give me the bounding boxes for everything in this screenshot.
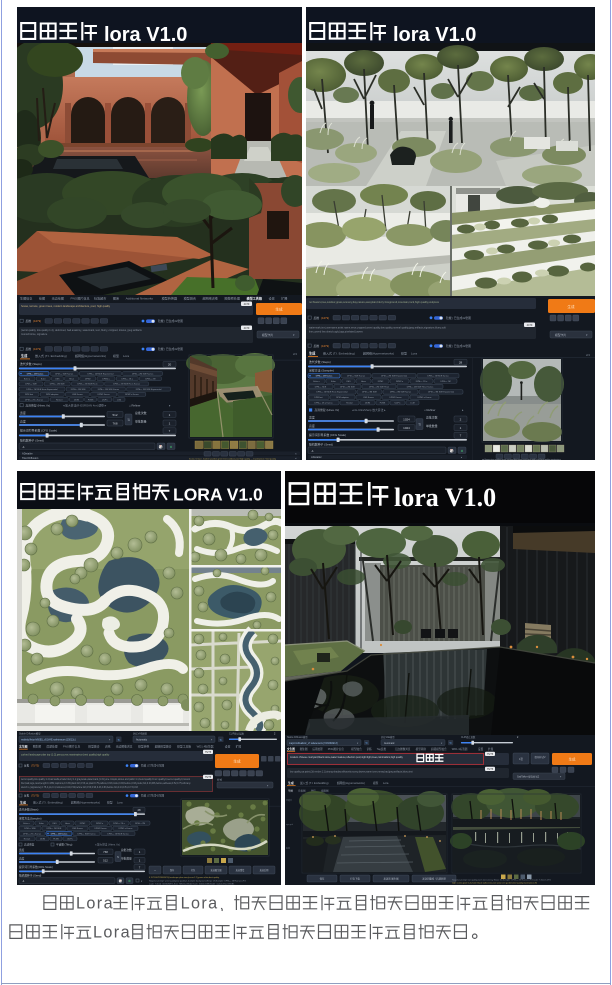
svg-text:Euler a: Euler a xyxy=(24,379,31,381)
svg-text:75/75: 75/75 xyxy=(205,776,212,779)
svg-text:DPM++ 2M SDE Exponential: DPM++ 2M SDE Exponential xyxy=(88,372,114,375)
svg-text:隐藏 | 已生成42张图: 隐藏 | 已生成42张图 xyxy=(446,316,471,320)
svg-text:◂ 放大算法 (Hires. fix): ◂ 放大算法 (Hires. fix) xyxy=(95,843,120,847)
svg-text:house, terrace, green trees, m: house, terrace, green trees, modern land… xyxy=(21,304,111,308)
svg-text:DPM++ 2S a Karras: DPM++ 2S a Karras xyxy=(25,399,43,401)
svg-text:75/75: 75/75 xyxy=(487,753,494,756)
svg-text:设置: 设置 xyxy=(225,745,231,749)
svg-text:Euler a: Euler a xyxy=(313,381,320,383)
svg-text:768: 768 xyxy=(103,850,108,854)
svg-text:no flowers,tree,outdoor,grass,: no flowers,tree,outdoor,grass,scenery,da… xyxy=(309,300,440,304)
svg-text:LMS: LMS xyxy=(346,381,351,383)
svg-text:DPM++ 2M SDE Exponential: DPM++ 2M SDE Exponential xyxy=(381,375,407,378)
svg-text:Euler: Euler xyxy=(41,379,46,381)
svg-text:Heun: Heun xyxy=(69,379,74,381)
svg-text:PNG图片信息: PNG图片信息 xyxy=(63,745,80,749)
svg-text:Lora: Lora xyxy=(181,895,218,912)
svg-text:watermark,text,username,artist: watermark,text,username,artist name,erro… xyxy=(309,326,446,329)
svg-text:DPM2: DPM2 xyxy=(85,379,91,381)
svg-text:blur,bad,logo,cand,length:0.43: blur,bad,logo,cand,length:0.4352,caption… xyxy=(21,782,191,785)
svg-text:生成: 生成 xyxy=(21,353,28,358)
svg-text:□ Refiner: □ Refiner xyxy=(424,408,436,412)
svg-text:DPM++ SDE Karras: DPM++ SDE Karras xyxy=(347,376,365,378)
svg-text:🎲: 🎲 xyxy=(159,444,163,449)
svg-text:绘图: 绘图 xyxy=(39,296,45,301)
svg-text:生成: 生成 xyxy=(288,780,294,785)
svg-text:DPM2 a Karras: DPM2 a Karras xyxy=(418,397,432,399)
svg-text:总批次数: 总批次数 xyxy=(426,415,438,420)
svg-text:DPM++ 2M SDE Karras: DPM++ 2M SDE Karras xyxy=(427,376,448,378)
svg-text:反推: 反推 xyxy=(26,347,32,351)
svg-text:512: 512 xyxy=(112,413,117,417)
svg-text:超网络训练: 超网络训练 xyxy=(203,296,218,301)
svg-text:(4479): (4479) xyxy=(321,344,329,348)
svg-text:训练: 训练 xyxy=(367,747,373,751)
svg-text:文生图: 文生图 xyxy=(18,745,28,749)
svg-text:扩展: 扩展 xyxy=(236,745,242,749)
svg-text:DPM++ 2S a: DPM++ 2S a xyxy=(416,381,428,383)
svg-text:-1: -1 xyxy=(22,879,25,883)
svg-text:PNG图片信息: PNG图片信息 xyxy=(71,296,90,301)
svg-text:DPM++ 2M: DPM++ 2M xyxy=(145,379,155,381)
svg-text:Negative prompt: low quality,w: Negative prompt: low quality,warm tone,m… xyxy=(452,878,552,881)
svg-text:隐藏 | 已生成42张图: 隐藏 | 已生成42张图 xyxy=(141,794,165,798)
svg-text:PLMS: PLMS xyxy=(53,839,59,841)
svg-text:DPM2 a Karras: DPM2 a Karras xyxy=(125,394,139,396)
svg-text:UniPC: UniPC xyxy=(395,403,401,405)
svg-text:Euler a: Euler a xyxy=(23,823,30,825)
svg-text:提示词引导系数(CFG Scale): 提示词引导系数(CFG Scale) xyxy=(19,865,53,869)
svg-text:1张: 1张 xyxy=(519,757,523,761)
svg-text:▾: ▾ xyxy=(560,776,561,779)
svg-text:28: 28 xyxy=(459,360,463,364)
svg-text:🎲: 🎲 xyxy=(450,448,454,453)
svg-text:超网络(Hypernetworks): 超网络(Hypernetworks) xyxy=(363,351,394,356)
svg-text:隐藏 | 已生成42张图: 隐藏 | 已生成42张图 xyxy=(158,347,183,351)
svg-text:DPM fast: DPM fast xyxy=(25,393,34,396)
svg-text:随机数种子 (Seed): 随机数种子 (Seed) xyxy=(20,437,44,442)
svg-text:模型工具箱: 模型工具箱 xyxy=(177,745,191,749)
svg-text:Automatic: Automatic xyxy=(384,742,395,745)
svg-text:文生图: 文生图 xyxy=(286,747,295,751)
svg-text:迭代步数 (Steps): 迭代步数 (Steps) xyxy=(20,361,42,366)
svg-text:超级模型融合: 超级模型融合 xyxy=(155,745,172,749)
svg-text:Lora: Lora xyxy=(117,800,123,804)
svg-text:高度: 高度 xyxy=(309,423,315,428)
svg-text:嵌入式 (T.I. Embedding): 嵌入式 (T.I. Embedding) xyxy=(33,800,63,804)
svg-text:WD1.4标签器: WD1.4标签器 xyxy=(197,745,214,749)
svg-text:后期处理: 后期处理 xyxy=(312,747,323,751)
svg-text:模型转换器: 模型转换器 xyxy=(162,296,177,301)
svg-text:🎲: 🎲 xyxy=(119,879,123,883)
svg-text:PLMS: PLMS xyxy=(380,403,386,405)
svg-text:无边图像浏览: 无边图像浏览 xyxy=(116,745,133,749)
svg-text:Lora: Lora xyxy=(123,354,129,358)
svg-text:DPM++ 3M SDE Karras: DPM++ 3M SDE Karras xyxy=(390,392,411,394)
svg-text:DPM2 a: DPM2 a xyxy=(102,379,110,381)
svg-text:DDIM: DDIM xyxy=(74,399,79,401)
svg-text:DPM++ 2M Karras: DPM++ 2M Karras xyxy=(316,376,333,378)
svg-text:DPM++ 2M: DPM++ 2M xyxy=(440,381,450,383)
svg-text:生成: 生成 xyxy=(20,799,26,804)
svg-text:超网络(Hypernetworks): 超网络(Hypernetworks) xyxy=(75,353,106,358)
svg-text:高清修复 (Hires. fix): 高清修复 (Hires. fix) xyxy=(315,408,340,412)
svg-text:超级模型融合: 超级模型融合 xyxy=(431,747,447,751)
svg-text:DPM++ SDE Karras: DPM++ SDE Karras xyxy=(55,373,73,375)
svg-text:Lora: Lora xyxy=(383,781,389,785)
svg-text:DPM fast: DPM fast xyxy=(314,396,323,399)
svg-text:模型: 模型 xyxy=(401,351,407,356)
svg-text:隐藏 | 已生成42张图: 隐藏 | 已生成42张图 xyxy=(158,319,183,323)
svg-text:提示词引导系数 (CFG Scale): 提示词引导系数 (CFG Scale) xyxy=(20,427,57,432)
svg-text:总批次数: 总批次数 xyxy=(121,848,132,852)
svg-text:标签超市: 标签超市 xyxy=(94,296,106,301)
svg-text:monochrome, signature: monochrome, signature xyxy=(21,333,48,336)
svg-text:设置: 设置 xyxy=(269,296,275,301)
svg-text:DPM2: DPM2 xyxy=(378,381,384,383)
svg-text:DPM++ SDE: DPM++ SDE xyxy=(24,828,36,830)
svg-text:Euler: Euler xyxy=(331,381,336,383)
svg-text:保存样式2: 保存样式2 xyxy=(535,755,547,759)
svg-text:扩展: 扩展 xyxy=(488,747,494,751)
svg-text:xyz grid: xyz grid xyxy=(286,824,293,826)
svg-text:DPM2 a: DPM2 a xyxy=(396,381,404,383)
svg-text:Heun: Heun xyxy=(361,381,366,383)
svg-text:DPM++ 2S a Karras: DPM++ 2S a Karras xyxy=(315,403,333,405)
svg-text:(worst quality, low quality:1.: (worst quality, low quality:1.4), deform… xyxy=(21,329,142,332)
svg-text:DPM++ 2M SDE Heun Karras: DPM++ 2M SDE Heun Karras xyxy=(113,384,140,386)
svg-text:无边图像浏览: 无边图像浏览 xyxy=(395,747,411,751)
svg-text:realisticVisionV60B1_v51VAE.sa: realisticVisionV60B1_v51VAE.safetensors … xyxy=(21,739,76,742)
svg-text:curbed landscape plan top (1:2: curbed landscape plan top (1:2),penccurv… xyxy=(21,753,110,756)
svg-text:嵌入式 (T.I. Embedding): 嵌入式 (T.I. Embedding) xyxy=(300,781,329,785)
svg-text:发送到 图生图: 发送到 图生图 xyxy=(383,877,399,881)
svg-text:反推: 反推 xyxy=(24,794,30,798)
svg-text:PNG图片信息: PNG图片信息 xyxy=(328,747,344,751)
svg-text:◂ 4x-UltraSharp 放大算法 ▸: ◂ 4x-UltraSharp 放大算法 ▸ xyxy=(352,408,386,412)
svg-text:1024: 1024 xyxy=(403,417,410,421)
svg-text:总批次数: 总批次数 xyxy=(135,410,147,415)
svg-text:scale: 7,Seed: 3031580971,Size: scale: 7,Seed: 3031580971,Size: 768x512,… xyxy=(149,883,235,885)
svg-text:反推: 反推 xyxy=(26,319,32,323)
svg-text:▾: ▾ xyxy=(357,742,358,745)
svg-text:75/75: 75/75 xyxy=(205,751,212,754)
svg-text:宫格图: 宫格图 xyxy=(298,789,306,793)
svg-text:LMS Karras: LMS Karras xyxy=(363,397,374,399)
svg-text:DPM2 Karras: DPM2 Karras xyxy=(94,828,106,830)
svg-text:生图信息: 生图信息 xyxy=(20,296,32,301)
svg-text:训练: 训练 xyxy=(105,745,111,749)
svg-text:DPM++ 3M SDE: DPM++ 3M SDE xyxy=(362,392,377,394)
svg-text:4479: 4479 xyxy=(244,326,250,330)
svg-text:♻: ♻ xyxy=(461,449,464,453)
svg-text:单批数量: 单批数量 xyxy=(121,857,132,861)
svg-text:超网络(Hypernetworks): 超网络(Hypernetworks) xyxy=(337,781,365,785)
svg-text:DPM++ 2M SDE Karras: DPM++ 2M SDE Karras xyxy=(132,373,153,375)
svg-text:迭代步数(Steps): 迭代步数(Steps) xyxy=(19,807,39,811)
svg-text:WD1.4标签器: WD1.4标签器 xyxy=(452,747,468,751)
svg-text:lora V1.0: lora V1.0 xyxy=(394,483,496,512)
svg-text:图库: 图库 xyxy=(113,296,119,301)
svg-text:DPM++ 3M SDE Exponential: DPM++ 3M SDE Exponential xyxy=(428,391,454,394)
svg-text:后期处理: 后期处理 xyxy=(46,745,57,749)
svg-text:(75/75): (75/75) xyxy=(31,794,39,798)
svg-text:-1: -1 xyxy=(311,449,314,453)
svg-text:⇅: ⇅ xyxy=(418,423,421,427)
svg-text:Stable Diffusion模型: Stable Diffusion模型 xyxy=(19,731,41,735)
svg-text:LMS: LMS xyxy=(52,823,57,825)
svg-text:样式: 样式 xyxy=(217,778,223,782)
svg-text:反推: 反推 xyxy=(314,344,320,348)
svg-text:DPM2 Karras: DPM2 Karras xyxy=(389,397,401,399)
svg-text:2/4: 2/4 xyxy=(586,353,590,357)
svg-text:Negative prompt: worst quality: Negative prompt: worst quality,low quali… xyxy=(149,879,246,882)
svg-text:宽度: 宽度 xyxy=(19,848,25,852)
svg-text:DPM++ 2S a: DPM++ 2S a xyxy=(121,379,133,381)
svg-text:模型卡片: 模型卡片 xyxy=(262,333,273,337)
svg-text:打包下载: 打包下载 xyxy=(350,877,360,881)
svg-text:DPM++ 2M SDE: DPM++ 2M SDE xyxy=(47,828,62,830)
svg-text:line,curved line,sketch,ugly,l: line,curved line,sketch,ugly,logo,pixela… xyxy=(309,330,363,333)
svg-text:生成: 生成 xyxy=(275,306,283,311)
svg-text:DPM++ 2M SDE Heun Exponential: DPM++ 2M SDE Heun Exponential xyxy=(316,391,348,394)
svg-text:高清修复 (Hires. fix): 高清修复 (Hires. fix) xyxy=(26,403,51,407)
svg-text:DPM++ 3M SDE Exponential: DPM++ 3M SDE Exponential xyxy=(136,388,162,391)
svg-text:Lora: Lora xyxy=(93,923,130,941)
svg-text:DDIM: DDIM xyxy=(365,403,370,405)
svg-text:Tiled Diffusion: Tiled Diffusion xyxy=(22,456,39,460)
svg-text:Lora: Lora xyxy=(411,352,417,356)
svg-text:DPM++ 2M Karras: DPM++ 2M Karras xyxy=(27,373,44,375)
svg-text:DPM++ 2M: DPM++ 2M xyxy=(135,823,145,825)
svg-text:宽度: 宽度 xyxy=(309,415,315,420)
svg-text:□ Refiner: □ Refiner xyxy=(129,403,141,407)
svg-text:DPM2 a Karras: DPM2 a Karras xyxy=(119,828,133,830)
svg-text:DPM++ 2S a Karras: DPM++ 2S a Karras xyxy=(23,833,41,835)
svg-text:采样方法 (Sampler): 采样方法 (Sampler) xyxy=(309,367,334,372)
svg-text:迭代步数 (Steps): 迭代步数 (Steps) xyxy=(309,359,331,364)
svg-text:♻: ♻ xyxy=(170,445,173,449)
svg-text:超网络(Hypernetworks): 超网络(Hypernetworks) xyxy=(71,800,100,804)
svg-text:模型融合: 模型融合 xyxy=(184,296,196,301)
svg-text:CLIP终止层数: CLIP终止层数 xyxy=(229,731,244,735)
svg-text:DPM++ 2M SDE Heun Karras: DPM++ 2M SDE Heun Karras xyxy=(407,386,434,388)
svg-text:Restart: Restart xyxy=(24,838,31,841)
svg-text:DPM++ 2M SDE Karras: DPM++ 2M SDE Karras xyxy=(107,833,128,835)
svg-text:生成: 生成 xyxy=(309,351,316,356)
svg-text:LMS: LMS xyxy=(55,379,60,381)
svg-text:高度: 高度 xyxy=(20,419,26,424)
svg-text:low quality,car,paint,(3d rend: low quality,car,paint,(3d render:1.1),st… xyxy=(290,770,413,773)
svg-text:▾: ▾ xyxy=(154,869,155,872)
svg-text:DPM++ 2M Karras: DPM++ 2M Karras xyxy=(51,833,68,835)
svg-text:4479: 4479 xyxy=(244,302,250,306)
svg-text:LCM: LCM xyxy=(410,403,415,405)
svg-text:反推: 反推 xyxy=(314,316,320,320)
svg-text:0.7071067811865476),landscape: 0.7071067811865476),landscape plan view,… xyxy=(149,876,219,879)
svg-text:Automatic: Automatic xyxy=(136,739,148,742)
svg-text:DPM2: DPM2 xyxy=(80,823,86,825)
svg-text:发送到重绘 / 后期处理: 发送到重绘 / 后期处理 xyxy=(422,877,446,881)
svg-text:DPM++ SDE: DPM++ SDE xyxy=(315,386,327,388)
svg-text:◂ 放大算法(R-ESRGAN 4x+)调整 ▸: ◂ 放大算法(R-ESRGAN 4x+)调整 ▸ xyxy=(63,403,107,407)
svg-text:反推: 反推 xyxy=(24,764,30,768)
svg-text:UniPC: UniPC xyxy=(67,839,73,841)
svg-text:嵌入式 (T.I. Embedding): 嵌入式 (T.I. Embedding) xyxy=(35,353,67,358)
svg-text:LMS Karras: LMS Karras xyxy=(72,828,83,830)
svg-text:嵌入式 (T.I. Embedding): 嵌入式 (T.I. Embedding) xyxy=(323,351,355,356)
svg-text:图生图: 图生图 xyxy=(33,745,42,749)
svg-text:DPM++ SDE: DPM++ SDE xyxy=(25,384,37,386)
svg-text:no flowers,tree,outdoor,grass,: no flowers,tree,outdoor,grass,scenery,da… xyxy=(482,458,561,460)
svg-text:worst quality,low quality:1.4,: worst quality,low quality:1.4,bad walls,… xyxy=(21,778,191,781)
svg-text:高度: 高度 xyxy=(19,857,25,861)
svg-text:DPM++ 3M SDE Karras: DPM++ 3M SDE Karras xyxy=(98,389,119,391)
svg-text:♻: ♻ xyxy=(128,879,131,883)
svg-text:模型转换: 模型转换 xyxy=(416,747,427,751)
svg-text:DPM2 a: DPM2 a xyxy=(96,823,104,825)
svg-text:modern chinese courtyard,black: modern chinese courtyard,black stone,wat… xyxy=(290,756,404,759)
svg-text:模型卡片: 模型卡片 xyxy=(555,333,566,337)
svg-text:模型转换: 模型转换 xyxy=(138,745,149,749)
svg-text:LMS Karras: LMS Karras xyxy=(72,394,83,396)
svg-text:高清修复: 高清修复 xyxy=(24,843,35,847)
svg-text:DPM++ 2S a: DPM++ 2S a xyxy=(113,823,125,825)
svg-text:模型: 模型 xyxy=(107,800,113,804)
svg-text:Tag反推: Tag反推 xyxy=(377,747,387,751)
svg-text:house, terrace, modern pavilio: house, terrace, modern pavilion green tr… xyxy=(189,458,276,460)
svg-text:DPM++ 2M SDE Heun: DPM++ 2M SDE Heun xyxy=(77,384,97,386)
svg-text:1024: 1024 xyxy=(403,426,410,430)
svg-text:保存: 保存 xyxy=(320,877,325,881)
svg-text:平铺图 (Tiling): 平铺图 (Tiling) xyxy=(56,843,72,847)
svg-text:生成: 生成 xyxy=(569,757,576,762)
svg-text:DPM++ 2M SDE: DPM++ 2M SDE xyxy=(340,386,355,388)
svg-text:LCM: LCM xyxy=(117,399,122,401)
svg-text:sketch s,(signature),0.75,4,pi: sketch s,(signature),0.75,4,pix,0.4,mixt… xyxy=(21,786,139,789)
svg-text:DPM adaptive: DPM adaptive xyxy=(336,396,349,399)
svg-text:模型工具箱: 模型工具箱 xyxy=(247,296,262,301)
svg-text:单图: 单图 xyxy=(288,789,294,793)
svg-text:Restart: Restart xyxy=(346,402,353,405)
svg-text:DPM++ 2M SDE Heun: DPM++ 2M SDE Heun xyxy=(369,386,389,388)
svg-text:提示词引导系数 (CFG Scale): 提示词引导系数 (CFG Scale) xyxy=(309,432,346,437)
svg-text:SadTalker 保存样式2: SadTalker 保存样式2 xyxy=(517,775,540,779)
svg-text:Restart: Restart xyxy=(56,398,63,401)
svg-text:4479: 4479 xyxy=(527,323,533,327)
svg-text:768: 768 xyxy=(112,421,117,425)
svg-text:DPM++ 3M SDE: DPM++ 3M SDE xyxy=(71,389,86,391)
svg-text:2/4: 2/4 xyxy=(293,352,297,356)
svg-text:LORA V1.0: LORA V1.0 xyxy=(173,485,263,505)
svg-text:单批数量: 单批数量 xyxy=(135,419,147,424)
svg-text:▾: ▾ xyxy=(441,742,442,745)
svg-text:DPM++ 2M SDE: DPM++ 2M SDE xyxy=(50,384,65,386)
svg-text:(4479): (4479) xyxy=(33,319,41,323)
svg-text:Lora: Lora xyxy=(76,895,113,912)
svg-text:PLMS: PLMS xyxy=(88,399,94,401)
svg-text:随机数种子 (Seed): 随机数种子 (Seed) xyxy=(19,873,41,877)
svg-text:night scene,(pool:1.2),matte b: night scene,(pool:1.2),matte black walls… xyxy=(452,881,537,884)
svg-text:模型: 模型 xyxy=(113,353,119,358)
svg-text:-1: -1 xyxy=(22,445,25,449)
svg-text:单批数量: 单批数量 xyxy=(426,423,438,428)
svg-text:模型融合: 模型融合 xyxy=(351,747,362,751)
svg-text:DDIM: DDIM xyxy=(40,839,45,841)
svg-text:DPM2 Karras: DPM2 Karras xyxy=(98,394,110,396)
svg-text:设置: 设置 xyxy=(478,747,484,751)
svg-text:⇅: ⇅ xyxy=(127,418,130,422)
svg-text:(4479): (4479) xyxy=(321,316,329,320)
svg-text:DPM adaptive: DPM adaptive xyxy=(46,393,59,396)
svg-text:外挂VAE模型: 外挂VAE模型 xyxy=(133,731,148,735)
svg-text:(4479): (4479) xyxy=(33,347,41,351)
svg-text:ADetailer: ADetailer xyxy=(311,455,322,459)
svg-text:ADetailer: ADetailer xyxy=(22,451,33,455)
svg-text:DPM++ 2M SDE Heun Exponential: DPM++ 2M SDE Heun Exponential xyxy=(26,388,58,391)
svg-text:图生图: 图生图 xyxy=(300,747,308,751)
svg-text:无边绘图: 无边绘图 xyxy=(52,296,64,301)
svg-text:随机数种子 (Seed): 随机数种子 (Seed) xyxy=(309,441,333,446)
svg-text:采样方法(Sampler): 采样方法(Sampler) xyxy=(19,816,42,820)
svg-text:宽度: 宽度 xyxy=(20,410,26,415)
svg-text:28: 28 xyxy=(137,808,141,812)
svg-text:Euler: Euler xyxy=(39,823,44,825)
svg-text:扩展: 扩展 xyxy=(281,296,287,301)
svg-text:模型: 模型 xyxy=(373,781,379,785)
svg-text:Heun: Heun xyxy=(65,823,70,825)
svg-text:图像预处理: 图像预处理 xyxy=(225,296,240,301)
svg-text:DPM++ SDE Karras: DPM++ SDE Karras xyxy=(78,833,96,835)
svg-text:生成: 生成 xyxy=(567,304,575,309)
svg-text:512: 512 xyxy=(103,859,108,863)
svg-text:75/75: 75/75 xyxy=(487,768,494,771)
svg-text:20: 20 xyxy=(168,363,172,367)
svg-text:Additional Networks: Additional Networks xyxy=(126,297,154,301)
svg-text:UniPC: UniPC xyxy=(102,399,108,401)
svg-text:majicmixRealistic_v7.safetenso: majicmixRealistic_v7.safetensors [7c819b… xyxy=(289,742,338,745)
svg-text:(75/75): (75/75) xyxy=(31,764,39,768)
svg-text:隐藏 | 已生成42张图: 隐藏 | 已生成42张图 xyxy=(446,344,471,348)
svg-text:隐藏 | 已生成42张图: 隐藏 | 已生成42张图 xyxy=(141,764,165,768)
svg-text:生成: 生成 xyxy=(233,759,241,764)
svg-text:模型融合: 模型融合 xyxy=(88,745,99,749)
svg-text:缩略图: 缩略图 xyxy=(321,789,329,793)
